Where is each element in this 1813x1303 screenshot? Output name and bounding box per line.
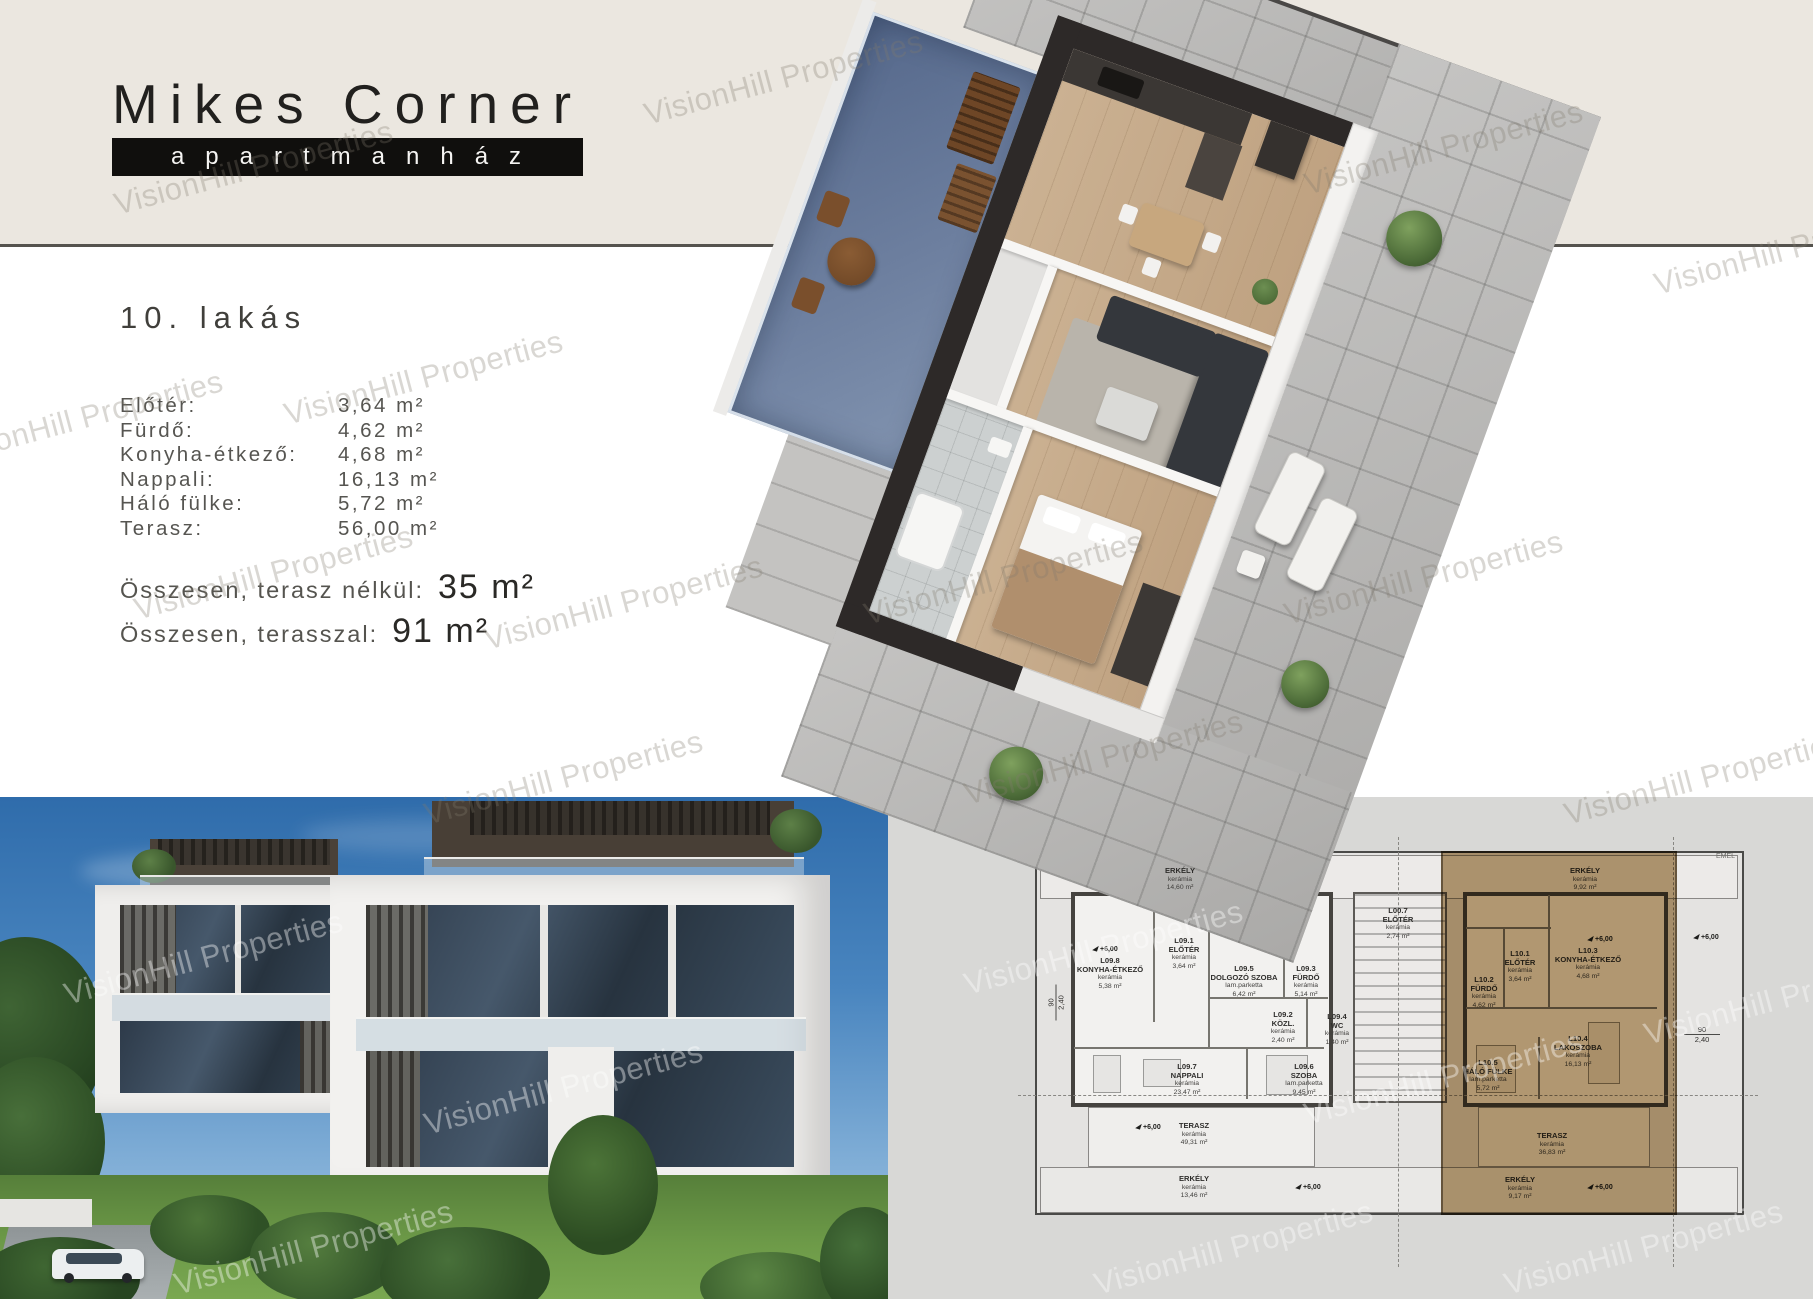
- right-pergola: [470, 801, 770, 835]
- retaining-wall: [0, 1199, 92, 1227]
- total-label: Összesen, terasszal:: [120, 621, 378, 648]
- car-wheel: [64, 1273, 74, 1283]
- plan-label-erkely-bottom-left: ERKÉLYkerámia13,46 m²: [1179, 1175, 1209, 1201]
- elevation-marker: +6,00: [1694, 933, 1719, 941]
- room-row: Háló fülke: 5,72 m²: [120, 492, 580, 516]
- right-mullion: [540, 905, 548, 1017]
- elevation-marker: +6,00: [1093, 945, 1118, 953]
- balcony-chair: [816, 190, 851, 229]
- axis-line: [1398, 837, 1399, 1267]
- elevation-marker: +6,00: [1296, 1183, 1321, 1191]
- left-mullion: [235, 905, 241, 993]
- plan-label-stairwell: L00.7ELŐTÉRkerámia2,74 m²: [1383, 907, 1414, 941]
- room-value: 5,72 m²: [338, 492, 425, 516]
- dimension-label: 90 2,40: [1047, 985, 1066, 1021]
- room-row: Fürdő: 4,62 m²: [120, 419, 580, 443]
- right-upper-shutter: [366, 905, 428, 1017]
- room-row: Előtér: 3,64 m²: [120, 394, 580, 418]
- left-upper-shutter: [120, 905, 176, 993]
- roof-plant: [770, 809, 822, 853]
- room-label: Fürdő:: [120, 419, 194, 442]
- room-label: Nappali:: [120, 468, 215, 491]
- plan-label-kozl: L09.2KÖZL.kerámia2,40 m²: [1271, 1011, 1295, 1045]
- plan-label-eloter: L09.1ELŐTÉRkerámia3,64 m²: [1169, 937, 1200, 971]
- room-label: Háló fülke:: [120, 492, 244, 515]
- balcony-chair: [790, 276, 825, 315]
- room-label: Terasz:: [120, 517, 204, 540]
- right-mullion: [668, 905, 676, 1017]
- car-windows: [66, 1253, 122, 1264]
- bed-pillow: [1042, 505, 1082, 534]
- exterior-render-photo: [0, 797, 888, 1299]
- total-row: Összesen, terasz nélkül: 35 m²: [120, 568, 535, 607]
- total-row: Összesen, terasszal: 91 m²: [120, 612, 489, 651]
- logo-title: Mikes Corner: [112, 72, 583, 136]
- right-balustrade: [356, 1017, 806, 1051]
- room-value: 3,64 m²: [338, 394, 425, 418]
- elevation-marker: +6,00: [1136, 1123, 1161, 1131]
- sheet-note: EMEL: [1716, 853, 1735, 860]
- total-label: Összesen, terasz nélkül:: [120, 577, 424, 604]
- plan-label-konyha: L09.8KONYHA-ÉTKEZŐkerámia5,38 m²: [1077, 957, 1143, 991]
- total-value: 91 m²: [392, 612, 489, 651]
- dimension-label: 90 2,40: [1684, 1025, 1720, 1044]
- balcony-table: [821, 231, 883, 293]
- floorplan-drawing: ERKÉLYkerámia14,60 m² L09.8KONYHA-ÉTKEZŐ…: [888, 797, 1813, 1299]
- wall-line: [1306, 997, 1308, 1047]
- plan-label-furdo: L09.3FÜRDŐkerámia5,14 m²: [1293, 965, 1320, 999]
- plan-label-dolgozo: L09.5DOLGOZÓ SZOBAlam.parketta6,42 m²: [1210, 965, 1277, 999]
- room-label: Előtér:: [120, 394, 197, 417]
- total-value: 35 m²: [438, 568, 535, 607]
- page-title: 10. lakás: [120, 300, 307, 336]
- room-row: Nappali: 16,13 m²: [120, 468, 580, 492]
- wall-line: [1074, 1047, 1324, 1049]
- right-lower-shutter: [366, 1051, 420, 1167]
- center-tree: [548, 1115, 658, 1255]
- room-value: 56,00 m²: [338, 517, 439, 541]
- room-row: Konyha-étkező: 4,68 m²: [120, 443, 580, 467]
- room-row: Terasz: 56,00 m²: [120, 517, 580, 541]
- logo-subtitle: apartmanház: [153, 143, 542, 171]
- plan-label-szoba: L09.6SZOBAlam.parketta9,45 m²: [1285, 1063, 1322, 1097]
- plan-label-balcony-top-left: ERKÉLYkerámia14,60 m²: [1165, 867, 1195, 893]
- wall-line: [1246, 1047, 1248, 1099]
- unit10-highlight: [1441, 851, 1677, 1215]
- bed-pillow: [1087, 522, 1127, 551]
- left-pergola: [158, 839, 330, 865]
- right-upper-windows: [366, 905, 794, 1017]
- car-wheel: [122, 1273, 132, 1283]
- plan-label-terasz-left: TERASZkerámia49,31 m²: [1179, 1122, 1209, 1148]
- furniture-outline: [1093, 1055, 1121, 1093]
- room-value: 16,13 m²: [338, 468, 439, 492]
- plan-label-wc: L09.4WCkerámia1,40 m²: [1325, 1013, 1349, 1047]
- room-label: Konyha-étkező:: [120, 443, 297, 466]
- plan-label-nappali: L09.7NAPPALIkerámia23,47 m²: [1171, 1063, 1204, 1097]
- bush: [250, 1212, 400, 1299]
- room-value: 4,68 m²: [338, 443, 425, 467]
- logo-subtitle-bar: apartmanház: [112, 138, 583, 176]
- room-value: 4,62 m²: [338, 419, 425, 443]
